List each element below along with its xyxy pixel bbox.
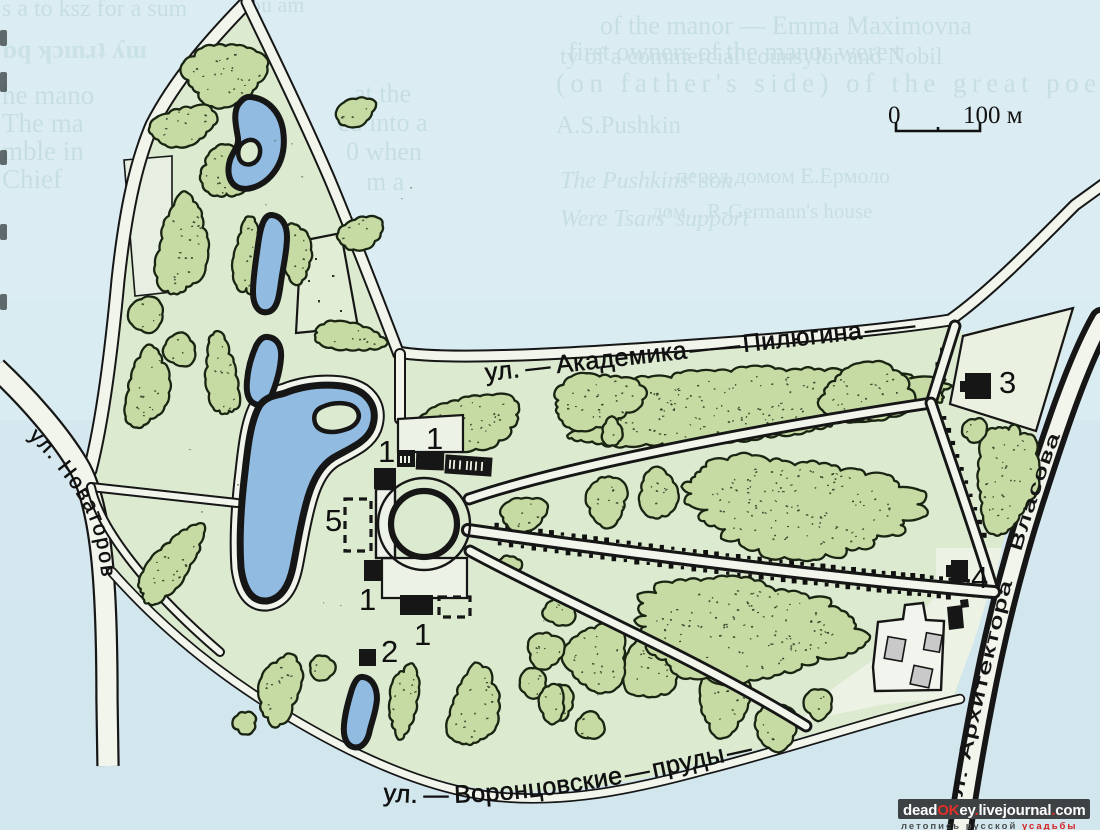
svg-text:(on father's side) of the grea: (on father's side) of the great poe [556, 68, 1096, 98]
svg-text:m a: m a [366, 167, 405, 196]
svg-text:2: 2 [381, 634, 398, 669]
svg-text:s a to ksz for a sum: s a to ksz for a sum [2, 0, 188, 22]
svg-text:1: 1 [359, 582, 376, 617]
svg-text:ɒq ʞɔınɹʇ ʎɯ: ɒq ʞɔınɹʇ ʎɯ [2, 35, 147, 64]
svg-text:летопись русской усадьбы: летопись русской усадьбы [901, 821, 1078, 830]
svg-text:3: 3 [999, 365, 1016, 400]
svg-text:A.S.Pushkin: A.S.Pushkin [556, 112, 682, 139]
svg-text:1: 1 [426, 421, 443, 456]
svg-text:0 when: 0 when [346, 137, 422, 166]
svg-text:перед домом Е.Ермоло: перед домом Е.Ермоло [676, 163, 890, 188]
svg-text:deadOKey.livejournal.com: deadOKey.livejournal.com [903, 802, 1086, 819]
svg-text:1: 1 [378, 434, 395, 469]
svg-text:1: 1 [414, 617, 431, 652]
svg-text:Chief: Chief [2, 164, 62, 194]
svg-text:he mano: he mano [2, 80, 94, 110]
svg-text:ty of a commercial counsylor a: ty of a commercial counsylor and Nobil [560, 44, 943, 70]
svg-text:4: 4 [971, 560, 988, 595]
svg-text:mble in: mble in [2, 136, 84, 166]
svg-text:The ma: The ma [2, 108, 84, 138]
svg-text:дом... R-Germann's house: дом... R-Germann's house [652, 199, 872, 223]
svg-text:5: 5 [325, 503, 342, 538]
svg-text:100 м: 100 м [963, 102, 1023, 129]
svg-text:of the manor — Emma Maximovna: of the manor — Emma Maximovna [600, 11, 972, 40]
svg-text:0: 0 [888, 102, 901, 129]
